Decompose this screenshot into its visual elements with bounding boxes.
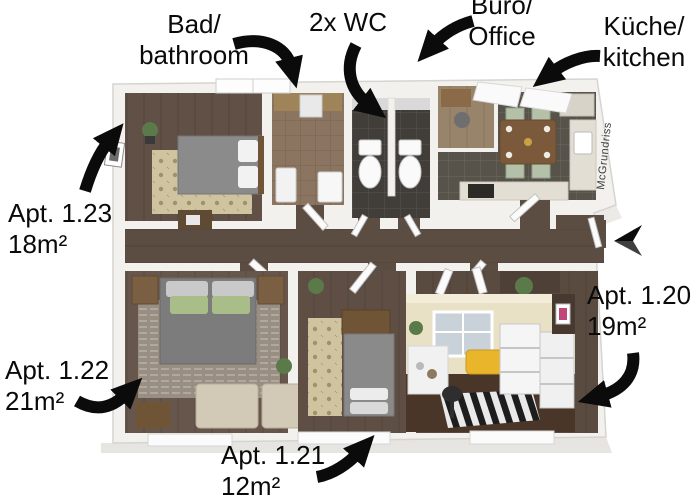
- label-apt-1-22-line1: Apt. 1.22: [5, 355, 109, 386]
- label-apt-1-21-line2: 12m²: [221, 471, 325, 502]
- bunk-frame: [500, 324, 540, 394]
- pillow: [238, 140, 258, 162]
- label-apt-1-23-line1: Apt. 1.23: [8, 198, 112, 229]
- entrance-arrow-icon: [614, 225, 642, 256]
- label-wc: 2x WC: [296, 7, 400, 38]
- plate: [506, 126, 512, 132]
- pillow: [212, 281, 254, 297]
- label-bathroom: Bad/ bathroom: [130, 9, 258, 71]
- photo-desk-item: [427, 369, 437, 379]
- plant-icon: [276, 358, 292, 374]
- nightstand: [132, 276, 158, 304]
- label-bathroom-line2: bathroom: [130, 40, 258, 71]
- label-apt-1-22: Apt. 1.22 21m²: [5, 355, 109, 417]
- hallway-planks: [125, 229, 604, 263]
- label-apt-1-20-line2: 19m²: [587, 311, 691, 342]
- bedroom-121-rug-pattern: [308, 318, 342, 416]
- label-apt-1-20-line1: Apt. 1.20: [587, 280, 691, 311]
- kitchen-sink: [574, 132, 592, 154]
- photo-ceiling: [406, 294, 575, 303]
- toilet-icon: [399, 140, 421, 188]
- label-office-line1: Büro/: [452, 0, 552, 21]
- label-office-line2: Office: [452, 21, 552, 52]
- plant-pot: [145, 136, 155, 144]
- curved-arrow-kitchen-icon: [551, 56, 600, 73]
- office-desk: [441, 89, 471, 107]
- label-kitchen: Küche/ kitchen: [598, 11, 690, 73]
- console-table: [136, 402, 170, 428]
- curved-arrow-wc-icon: [350, 45, 368, 104]
- room-photo-inset: [406, 294, 575, 444]
- pillow: [166, 281, 208, 297]
- label-apt-1-20: Apt. 1.20 19m²: [587, 280, 691, 342]
- entrance-arrow-bottom: [614, 241, 642, 256]
- label-wc-line1: 2x WC: [296, 7, 400, 38]
- photo-desk: [408, 346, 448, 394]
- photo-picture-art: [559, 308, 567, 320]
- floor-plan-figure: McGrundriss: [0, 0, 700, 500]
- label-apt-1-21: Apt. 1.21 12m²: [221, 440, 325, 502]
- dresser: [342, 310, 390, 334]
- centerpiece: [524, 138, 532, 146]
- window-sill: [470, 431, 554, 444]
- label-bathroom-line1: Bad/: [130, 9, 258, 40]
- pillow: [350, 402, 388, 414]
- label-apt-1-22-line2: 21m²: [5, 386, 109, 417]
- plant-icon: [142, 122, 158, 138]
- sofa: [196, 384, 258, 428]
- room-apt-1-22: [125, 271, 302, 433]
- kitchen-counter-right: [570, 120, 596, 190]
- photo-chair-leg: [450, 400, 454, 418]
- bunk-frame: [540, 332, 574, 408]
- chair: [506, 164, 524, 178]
- label-kitchen-line2: kitchen: [598, 42, 690, 73]
- office-chair: [454, 112, 470, 128]
- pillow: [350, 388, 388, 400]
- plate: [544, 126, 550, 132]
- shower: [276, 168, 296, 202]
- photo-desk-item: [416, 362, 424, 370]
- plate: [506, 152, 512, 158]
- pillow: [238, 166, 258, 188]
- room-apt-1-21: [298, 262, 406, 433]
- label-office: Büro/ Office: [452, 0, 552, 52]
- plant-icon: [515, 277, 533, 295]
- photo-plant-icon: [409, 321, 423, 335]
- curved-arrow-apt-1-20-icon: [600, 353, 633, 396]
- armchair: [262, 384, 302, 428]
- label-apt-1-21-line1: Apt. 1.21: [221, 440, 325, 471]
- room-wc: [352, 98, 430, 218]
- pillow-green: [212, 296, 250, 314]
- toilet-icon: [359, 140, 381, 188]
- table-item: [186, 215, 200, 225]
- room-bathroom: [272, 93, 344, 205]
- photo-bunk-bed: [540, 332, 574, 408]
- plant-icon: [308, 278, 324, 294]
- pillow-green: [170, 296, 208, 314]
- wc-divider-wall: [388, 98, 395, 196]
- label-kitchen-line1: Küche/: [598, 11, 690, 42]
- headboard: [258, 136, 264, 194]
- chair: [532, 164, 550, 178]
- label-apt-1-23-line2: 18m²: [8, 229, 112, 260]
- entrance-arrow-top: [614, 225, 642, 241]
- sink: [318, 172, 342, 202]
- nightstand: [258, 276, 284, 304]
- room-apt-1-23: [125, 93, 264, 234]
- washing-machine: [300, 95, 322, 117]
- window-sill: [148, 434, 232, 446]
- label-apt-1-23: Apt. 1.23 18m²: [8, 198, 112, 260]
- photo-office-chair: [442, 386, 462, 402]
- stove: [468, 184, 494, 198]
- photo-bunk-bed: [500, 324, 540, 394]
- curved-arrow-apt-1-23-icon: [85, 141, 109, 191]
- plate: [544, 152, 550, 158]
